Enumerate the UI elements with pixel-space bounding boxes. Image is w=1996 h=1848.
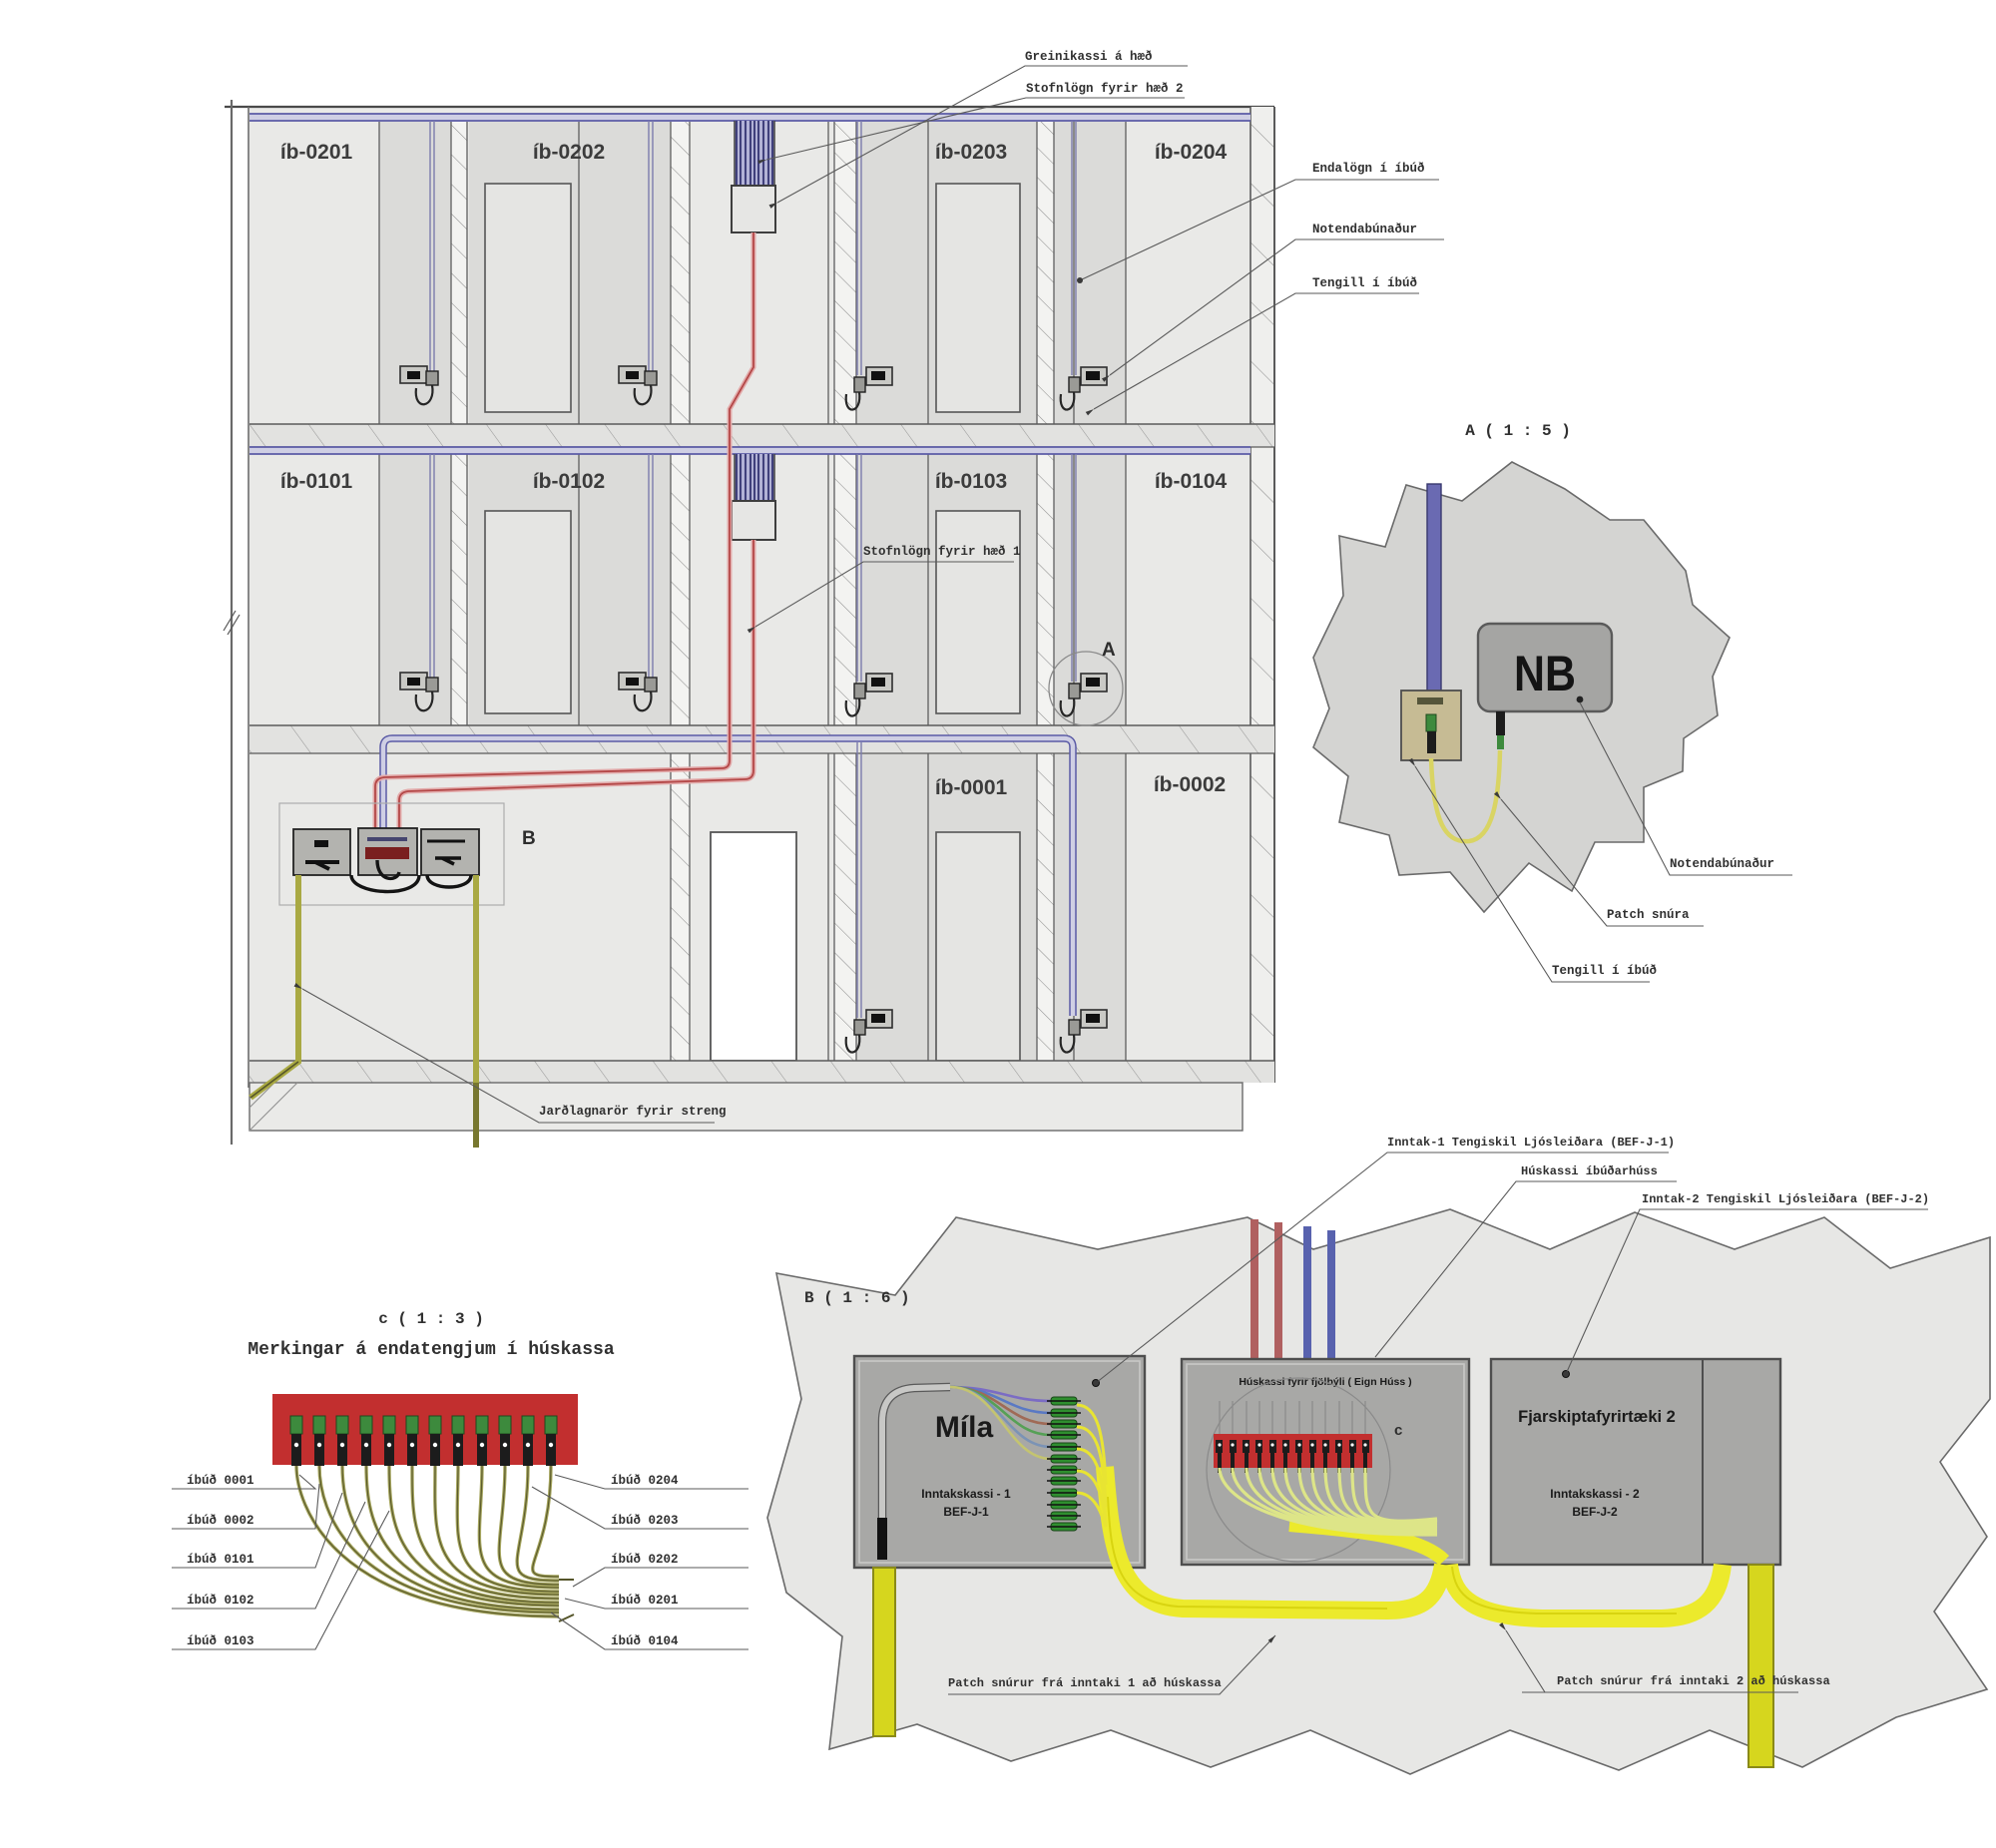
svg-text:íb-0102: íb-0102: [533, 470, 605, 493]
svg-text:c ( 1 : 3 ): c ( 1 : 3 ): [378, 1310, 484, 1328]
svg-text:NB: NB: [1514, 646, 1576, 701]
svg-text:Patch snúrur frá inntaki 2 að: Patch snúrur frá inntaki 2 að húskassa: [1557, 1674, 1830, 1688]
svg-text:Inntakskassi - 2: Inntakskassi - 2: [1550, 1487, 1640, 1501]
svg-text:Notendabúnaður: Notendabúnaður: [1670, 857, 1774, 871]
svg-text:íbúð 0001: íbúð 0001: [187, 1474, 254, 1488]
svg-text:c: c: [1394, 1422, 1402, 1439]
svg-text:íb-0104: íb-0104: [1155, 470, 1228, 493]
svg-text:Tengill í íbúð: Tengill í íbúð: [1312, 276, 1417, 290]
svg-text:Notendabúnaður: Notendabúnaður: [1312, 223, 1417, 236]
svg-text:A ( 1 : 5 ): A ( 1 : 5 ): [1465, 422, 1571, 440]
svg-text:Greinikassi á hæð: Greinikassi á hæð: [1025, 50, 1153, 64]
svg-text:íbúð 0202: íbúð 0202: [611, 1553, 679, 1567]
svg-text:Húskassi íbúðarhúss: Húskassi íbúðarhúss: [1521, 1164, 1658, 1178]
svg-text:Inntak-2 Tengiskil Ljósleiðara: Inntak-2 Tengiskil Ljósleiðara (BEF-J-2): [1642, 1192, 1929, 1206]
svg-text:Fjarskiptafyrirtæki 2: Fjarskiptafyrirtæki 2: [1518, 1408, 1676, 1426]
svg-text:íbúð 0204: íbúð 0204: [611, 1474, 679, 1488]
svg-text:BEF-J-1: BEF-J-1: [943, 1505, 989, 1519]
svg-text:Stofnlögn fyrir hæð 2: Stofnlögn fyrir hæð 2: [1026, 82, 1184, 96]
svg-text:íb-0103: íb-0103: [935, 470, 1007, 493]
svg-text:íbúð 0002: íbúð 0002: [187, 1514, 254, 1528]
svg-text:B: B: [522, 828, 536, 849]
svg-text:íbúð 0101: íbúð 0101: [187, 1553, 254, 1567]
svg-text:Inntakskassi - 1: Inntakskassi - 1: [921, 1487, 1011, 1501]
svg-text:Patch snúrur frá inntaki 1 að: Patch snúrur frá inntaki 1 að húskassa: [948, 1676, 1222, 1690]
svg-text:A: A: [1102, 640, 1116, 661]
svg-text:íb-0001: íb-0001: [935, 776, 1008, 799]
svg-text:BEF-J-2: BEF-J-2: [1572, 1505, 1618, 1519]
svg-text:íb-0002: íb-0002: [1154, 773, 1226, 796]
svg-text:íbúð 0103: íbúð 0103: [187, 1634, 254, 1648]
svg-text:B ( 1 : 6 ): B ( 1 : 6 ): [804, 1289, 910, 1307]
svg-text:Stofnlögn fyrir hæð 1: Stofnlögn fyrir hæð 1: [863, 545, 1021, 559]
svg-text:íbúð 0102: íbúð 0102: [187, 1594, 254, 1608]
svg-text:Merkingar á endatengjum í húsk: Merkingar á endatengjum í húskassa: [248, 1340, 614, 1360]
svg-text:Endalögn í íbúð: Endalögn í íbúð: [1312, 162, 1425, 176]
svg-text:Patch snúra: Patch snúra: [1607, 908, 1690, 922]
svg-text:íb-0204: íb-0204: [1155, 141, 1228, 164]
svg-text:íb-0201: íb-0201: [280, 141, 353, 164]
svg-text:íb-0203: íb-0203: [935, 141, 1007, 164]
svg-text:íbúð 0104: íbúð 0104: [611, 1634, 679, 1648]
svg-text:Inntak-1 Tengiskil Ljósleiðara: Inntak-1 Tengiskil Ljósleiðara (BEF-J-1): [1387, 1136, 1675, 1150]
svg-text:íb-0202: íb-0202: [533, 141, 605, 164]
svg-text:íbúð 0201: íbúð 0201: [611, 1594, 679, 1608]
svg-text:íbúð 0203: íbúð 0203: [611, 1514, 679, 1528]
svg-text:Jarðlagnarör fyrir streng: Jarðlagnarör fyrir streng: [539, 1105, 727, 1119]
svg-text:Tengill í íbúð: Tengill í íbúð: [1552, 964, 1657, 978]
svg-text:íb-0101: íb-0101: [280, 470, 353, 493]
svg-text:Míla: Míla: [935, 1411, 994, 1444]
